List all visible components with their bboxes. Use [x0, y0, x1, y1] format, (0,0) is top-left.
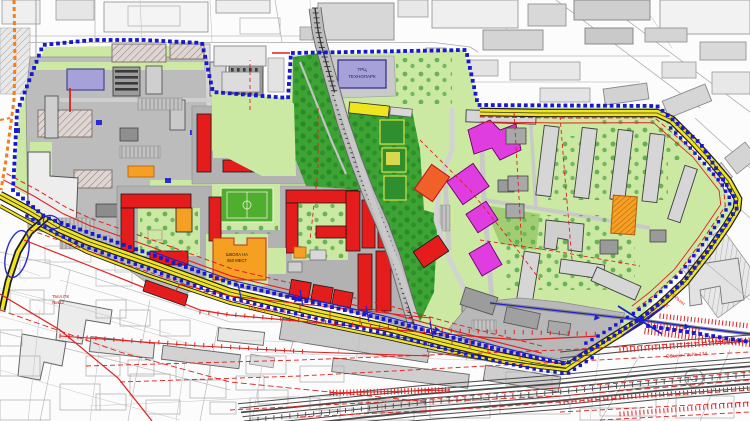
svg-text:550 МЕСТ: 550 МЕСТ	[227, 258, 247, 263]
svg-text:ТРЦ: ТРЦ	[357, 67, 367, 72]
svg-text:ТЕХНОПАРК: ТЕХНОПАРК	[348, 74, 376, 79]
svg-text:ШКОЛА НА: ШКОЛА НА	[226, 252, 248, 257]
svg-text:Твпл.ПК: Твпл.ПК	[52, 294, 69, 299]
svg-text:№112: №112	[52, 300, 64, 305]
